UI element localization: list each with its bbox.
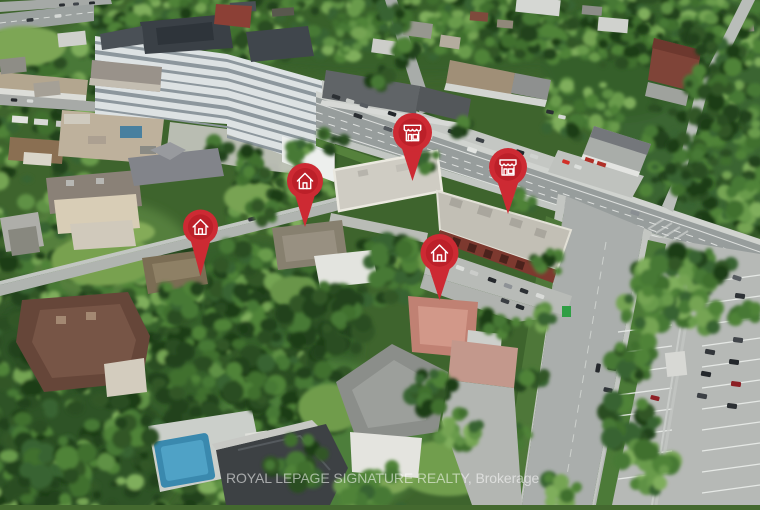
- svg-text:ROYAL LEPAGE SIGNATURE REALTY,: ROYAL LEPAGE SIGNATURE REALTY, Brokerage: [226, 470, 540, 486]
